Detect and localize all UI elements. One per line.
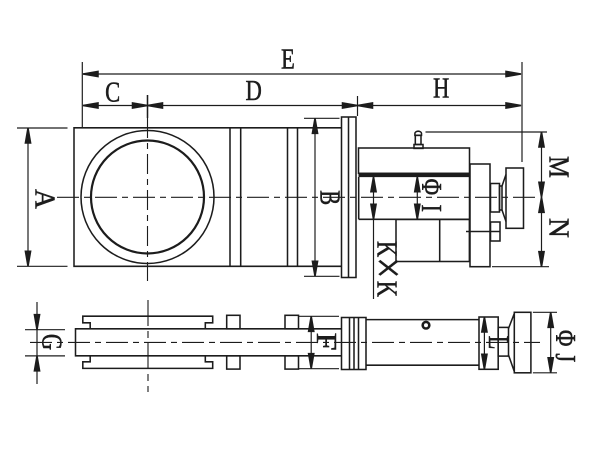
svg-text:ΦI: ΦI (415, 179, 447, 222)
svg-text:C: C (105, 76, 120, 108)
svg-text:A: A (28, 189, 60, 209)
svg-text:E: E (281, 43, 295, 75)
svg-text:ΦJ: ΦJ (549, 330, 581, 369)
svg-text:D: D (246, 74, 262, 106)
svg-text:F: F (310, 333, 342, 351)
svg-text:H: H (433, 72, 450, 104)
svg-text:B: B (314, 190, 346, 205)
svg-text:K×K: K×K (361, 241, 413, 297)
svg-text:N: N (542, 218, 574, 238)
svg-text:M: M (543, 156, 575, 178)
